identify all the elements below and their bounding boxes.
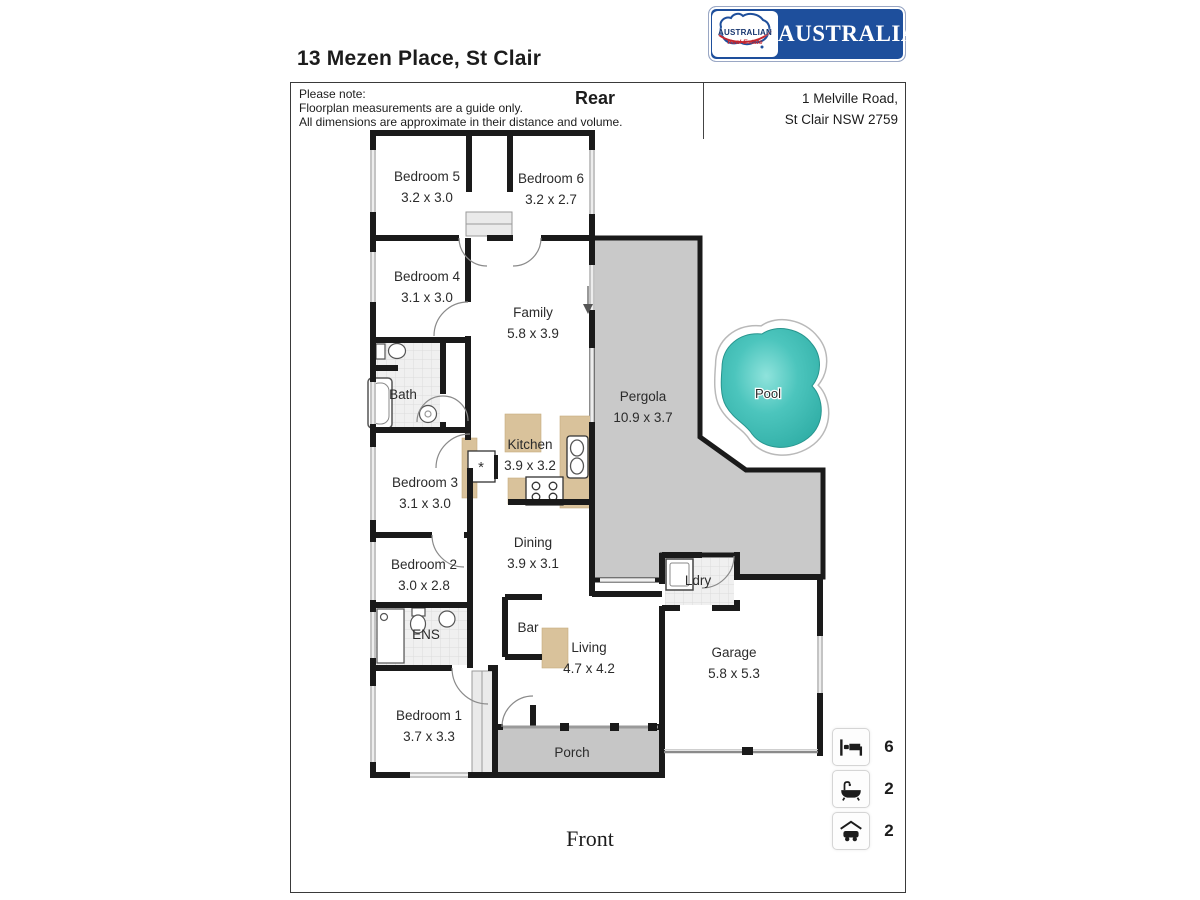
- room-dims-bedroom2: 3.0 x 2.8: [398, 578, 450, 593]
- room-label-bedroom6: Bedroom 6: [518, 171, 584, 186]
- room-label-bar: Bar: [517, 620, 539, 635]
- agency-emblem: AUSTRALIAN Real Estate: [712, 11, 778, 57]
- room-label-bedroom5: Bedroom 5: [394, 169, 460, 184]
- legend-garage: 2: [832, 812, 896, 850]
- room-dims-pergola: 10.9 x 3.7: [613, 410, 672, 425]
- room-dims-bedroom3: 3.1 x 3.0: [399, 496, 451, 511]
- room-label-bedroom2: Bedroom 2: [391, 557, 457, 572]
- pool-label: Pool: [755, 386, 781, 401]
- agency-logo: AUSTRALIAN Real Estate AUSTRALIAN: [708, 6, 906, 62]
- room-label-ens: ENS: [412, 627, 440, 642]
- room-label-porch: Porch: [554, 745, 589, 760]
- emblem-sub-text: Real Estate: [712, 39, 778, 46]
- room-label-bedroom1: Bedroom 1: [396, 708, 462, 723]
- room-dims-bedroom5: 3.2 x 3.0: [401, 190, 453, 205]
- room-dims-bedroom4: 3.1 x 3.0: [401, 290, 453, 305]
- emblem-brand-text: AUSTRALIAN: [712, 28, 778, 37]
- room-dims-bedroom6: 3.2 x 2.7: [525, 192, 577, 207]
- room-label-bath: Bath: [389, 387, 417, 402]
- room-label-dining: Dining: [514, 535, 552, 550]
- room-dims-garage: 5.8 x 5.3: [708, 666, 760, 681]
- room-label-living: Living: [571, 640, 606, 655]
- bed-icon: [832, 728, 870, 766]
- car-icon: [832, 812, 870, 850]
- room-label-bedroom4: Bedroom 4: [394, 269, 461, 284]
- room-dims-family: 5.8 x 3.9: [507, 326, 559, 341]
- room-label-kitchen: Kitchen: [507, 437, 552, 452]
- room-label-garage: Garage: [711, 645, 756, 660]
- room-dims-living: 4.7 x 4.2: [563, 661, 615, 676]
- features-legend: 6 2 2: [832, 728, 896, 854]
- bath-icon: [832, 770, 870, 808]
- floorplan-page: { "title": "13 Mezen Place, St Clair", "…: [0, 0, 1200, 900]
- legend-bedrooms: 6: [832, 728, 896, 766]
- page-title: 13 Mezen Place, St Clair: [297, 47, 541, 71]
- room-label-pergola: Pergola: [620, 389, 667, 404]
- bathroom-count: 2: [882, 779, 896, 799]
- agency-name: AUSTRALIAN: [778, 21, 935, 47]
- room-dims-dining: 3.9 x 3.1: [507, 556, 559, 571]
- wc-toilet: [376, 344, 385, 359]
- room-label-family: Family: [513, 305, 553, 320]
- ens-basin: [439, 611, 455, 627]
- room-dims-kitchen: 3.9 x 3.2: [504, 458, 556, 473]
- room-label-ldry: Ldry: [685, 573, 712, 588]
- room-dims-bedroom1: 3.7 x 3.3: [403, 729, 455, 744]
- appliance-star: *: [478, 459, 484, 476]
- bedroom-count: 6: [882, 737, 896, 757]
- legend-bathrooms: 2: [832, 770, 896, 808]
- room-label-bedroom3: Bedroom 3: [392, 475, 458, 490]
- floorplan-drawing: *: [290, 82, 906, 893]
- garage-count: 2: [882, 821, 896, 841]
